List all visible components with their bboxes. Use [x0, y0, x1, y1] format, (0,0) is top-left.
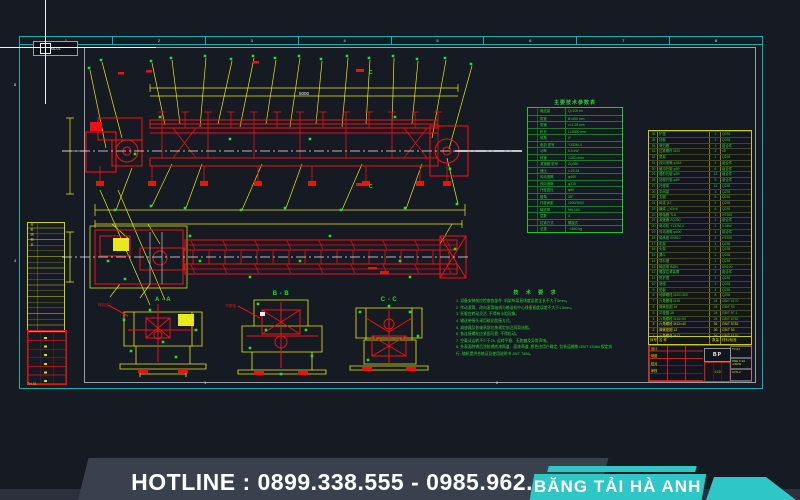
spec-row: 功率5.5 kW [528, 147, 622, 154]
section-label: B - B [273, 291, 290, 297]
spec-row: 总重~1800 kg [528, 225, 622, 232]
section-view-a: A - A 焊后加工 [98, 297, 206, 377]
note-line: 1. 设备安装前应检查各部件, 机架纵梁直线度误差全长不大于5mm。 [456, 298, 616, 305]
title-block-cell: TY-04 [730, 346, 752, 358]
spec-row: 托辊间距1000/3000 [528, 199, 622, 206]
crosshair-pickbox [40, 43, 51, 54]
section-cut-label: C [369, 184, 373, 190]
parts-list-row: 14导料槽1Q235 [649, 258, 751, 264]
parts-list-row: 2弹簧垫圈 1236GB/T 93 [649, 327, 751, 333]
parts-list-row: 20电动机 Y132M-415.5kW [649, 223, 751, 229]
brand-accent-bar [547, 466, 696, 472]
parts-list-rows: 36护罩2Q23535挡板2Q23534清扫器1组合件33拉紧螺杆 M20245… [649, 131, 751, 339]
parts-list-table: 36护罩2Q23535挡板2Q23534清扫器1组合件33拉紧螺杆 M20245… [648, 130, 752, 345]
spec-row: 机长L=5000 mm [528, 128, 622, 135]
conveyor-plan-view [62, 220, 470, 298]
dimension-text: 5000 [299, 91, 310, 96]
spec-row: 转速1440 r/min [528, 154, 622, 161]
spec-row: 带速v=1.25 m/s [528, 121, 622, 128]
spec-table: 主要技术参数表 输送量Q=100 t/h带宽B=650 mm带速v=1.25 m… [527, 99, 623, 233]
parts-list-row: 12螺旋拉紧装置2组合件 [649, 269, 751, 275]
spec-row: 层数4 [528, 212, 622, 219]
spec-row: 倾角0° [528, 134, 622, 141]
notes-lines: 1. 设备安装前应检查各部件, 机架纵梁直线度误差全长不大于5mm。2. 传动滚… [456, 298, 616, 358]
parts-list-row: 6弹簧垫圈 1624GB/T 93 [649, 304, 751, 310]
title-block-cells: TY-04PRE 6.3A 4.5DWAVN-2 [730, 346, 752, 381]
parts-list-header: 序号 名 称 数量 材料/标准 [649, 336, 751, 344]
drawing-scale: 1:10 [704, 362, 731, 382]
parts-list-row: 24纵梁 [122Q235 [649, 200, 751, 206]
parts-list-row: 7六角螺母 M1624GB/T 6170 [649, 298, 751, 304]
spec-row: 拉紧方式螺旋式 [528, 219, 622, 226]
spec-row: 减速器 型号ZQ350 [528, 160, 622, 167]
signature-label: 设计 [649, 346, 703, 353]
parts-list-row: 8地脚螺栓 M20×3008Q235 [649, 292, 751, 298]
parts-list-row: 36护罩2Q235 [649, 131, 751, 137]
spec-row: 电机 型号Y132M-4 [528, 141, 622, 148]
signature-label: 校对 [649, 361, 703, 368]
parts-list-row: 4六角螺栓 M16×5024GB/T 5782 [649, 316, 751, 322]
title-block-cell: AVN-2 [730, 369, 752, 381]
crosshair-h-line [0, 47, 156, 48]
parts-list-row: 11防护罩1Q235 [649, 275, 751, 281]
parts-list-row: 10底座2Q235 [649, 281, 751, 287]
parts-list-row: 22联轴器 TL61HT200 [649, 212, 751, 218]
title-block: 设计制图校对审核 BP 1:10 TY-04PRE 6.3A 4.5DWAVN-… [648, 345, 752, 382]
section-view-b: B - B 托辊组 [226, 291, 327, 375]
note-line: 3. 托辊应转动灵活, 不得有卡阻现象。 [456, 311, 616, 318]
spec-row: 带宽B=650 mm [528, 115, 622, 122]
parts-list-row: 26中间架3Q235 [649, 189, 751, 195]
parts-list-row: 30缓冲托辊 φ896组合件 [649, 166, 751, 172]
parts-list-row: 3六角螺栓 M12×4036GB/T 5782 [649, 321, 751, 327]
parts-list-row: 17机架1Q235 [649, 241, 751, 247]
drawing-code: BP [704, 348, 731, 362]
notes-title: 技 术 要 求 [456, 289, 616, 298]
technical-notes: 技 术 要 求 1. 设备安装前应检查各部件, 机架纵梁直线度误差全长不大于5m… [456, 289, 616, 358]
parts-list-row: 31改向滚筒 φ3151组合件 [649, 160, 751, 166]
note-line: 7. 空载试运转不少于2h, 运转平稳、无跑偏及异常声响。 [456, 338, 616, 345]
parts-list-row: 25支腿8Q235 [649, 194, 751, 200]
conveyor-side-view: 5000 C C [62, 56, 525, 305]
note-line: 2. 传动滚筒、改向滚筒轴线与输送机中心线垂直度误差不大于1.5mm。 [456, 305, 616, 312]
parts-list-row: 21减速器 ZQ3501组合件 [649, 217, 751, 223]
signature-label: 审核 [649, 368, 703, 375]
parts-list-row: 27托辊架14Q235 [649, 183, 751, 189]
spec-row: 改向滚筒φ315 [528, 180, 622, 187]
spec-row: 输送带NN-100 [528, 206, 622, 213]
parts-list-row: 29槽形托辊 φ8914组合件 [649, 171, 751, 177]
parts-list-row: 15漏斗1Q235 [649, 252, 751, 258]
spec-row: 输送量Q=100 t/h [528, 108, 622, 115]
parts-list-row: 5平垫圈 1624GB/T 97.1 [649, 310, 751, 316]
section-cut-label: C [369, 70, 373, 76]
parts-list-row: 33拉紧螺杆 M20245 [649, 148, 751, 154]
spec-table-title: 主要技术参数表 [527, 99, 623, 107]
note-line: 5. 减速器及各轴承部位按规定加注润滑油脂。 [456, 325, 616, 332]
note-line: 4. 输送带接头采用硫化胶接方式。 [456, 318, 616, 325]
title-block-cell: PRE 6.3A 4.5DW [730, 358, 752, 370]
cad-viewport[interactable]: 12345678 A0-01 8 4 1 2 材料明细表 TH-01 [0, 0, 800, 500]
note-line: 8. 外表面除锈后涂防锈底漆两道、面漆两道, 颜色由用户确定, 包装运输按 GB… [456, 344, 616, 357]
section-label: A - A [155, 297, 171, 303]
parts-list-row: 32尾架1Q235 [649, 154, 751, 160]
brand-name: BĂNG TẢI HÀ ANH [534, 477, 701, 497]
parts-list-row: 13输送带 B6501NN100 [649, 264, 751, 270]
spec-row: 速比i=23.34 [528, 167, 622, 174]
signature-label: 制图 [649, 353, 703, 360]
section-view-c: C - C [350, 297, 428, 371]
red-callout-text: 托辊组 [226, 303, 237, 308]
parts-list-row: 18轴承座 SN5102HT200 [649, 235, 751, 241]
spec-row: 托辊直径φ89 [528, 186, 622, 193]
brand-box: BĂNG TẢI HÀ ANH [530, 474, 707, 500]
spec-row: 传动滚筒φ400 [528, 173, 622, 180]
parts-list-row: 19传动滚筒 φ4001组合件 [649, 229, 751, 235]
callout-labels [108, 236, 455, 279]
signature-grid: 设计制图校对审核 [649, 346, 703, 381]
parts-list-row: 28回程托辊 φ895组合件 [649, 177, 751, 183]
parts-list-row: 34清扫器1组合件 [649, 143, 751, 149]
parts-list-row: 16头架1Q235 [649, 246, 751, 252]
parts-list-row: 23横梁 ∠63×66Q235 [649, 206, 751, 212]
section-label: C - C [381, 297, 398, 303]
spec-table-rows: 输送量Q=100 t/h带宽B=650 mm带速v=1.25 m/s机长L=50… [527, 107, 623, 233]
note-line: 6. 各连接螺栓应紧固可靠, 不得松动。 [456, 331, 616, 338]
hotline-number: HOTLINE : 0899.338.555 - 0985.962.451 [112, 469, 592, 496]
spec-row: 槽角35° [528, 193, 622, 200]
red-callout-text: 焊后加工 [98, 302, 112, 307]
parts-list-row: 9垫板4Q235 [649, 287, 751, 293]
parts-list-row: 35挡板2Q235 [649, 137, 751, 143]
